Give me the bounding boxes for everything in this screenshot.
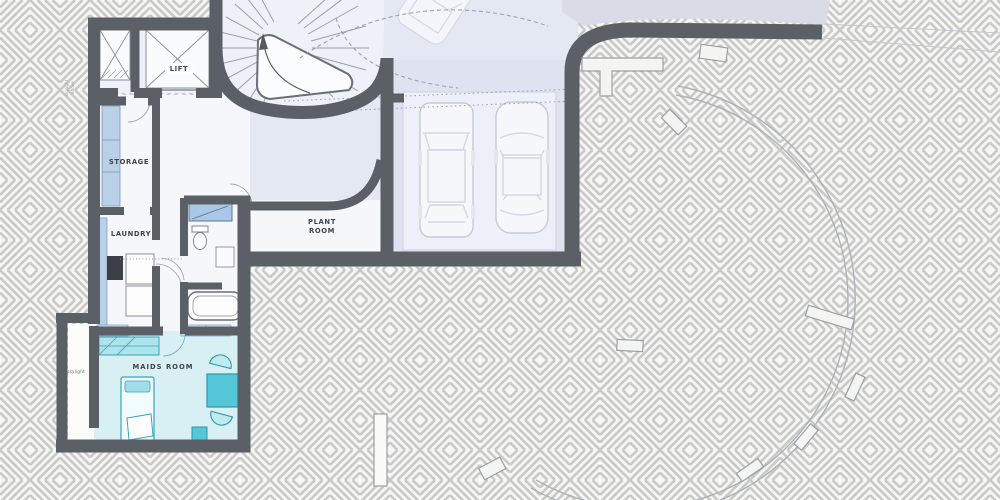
laundry-cabinet-2 [126,286,154,316]
plant-room-label-1: PLANT [308,218,336,226]
laundry-cabinet-1 [126,254,154,284]
storage-label: STORAGE [109,158,149,166]
toilet-bowl [194,233,207,250]
pier-3 [617,339,644,351]
skylight-label: skylight [67,369,85,374]
bed-blanket [127,414,153,440]
side-note-line-1: skylight [64,79,69,96]
lift-label: LIFT [170,65,189,73]
toilet-cistern [192,226,208,232]
floor-plan-page: LIFT STORAGE LAUNDRY PLANT ROOM [0,0,1000,500]
storage-shelves [102,106,120,206]
car-suv [418,103,475,237]
site-fin-wall [374,414,387,486]
car-sedan [494,102,550,233]
plant-room-label-2: ROOM [309,227,335,235]
pier-1 [699,44,728,62]
floor-plan-canvas: LIFT STORAGE LAUNDRY PLANT ROOM [0,0,1000,500]
side-note: skylight above [64,79,75,96]
maids-room-label: MAIDS ROOM [132,363,193,371]
laundry-shelf-strip [99,218,107,330]
bath-closet [216,247,234,267]
side-note-line-2: above [70,81,75,94]
table [207,374,238,407]
laundry-label: LAUNDRY [111,230,151,238]
bed-pillow [125,381,150,392]
washing-machine [107,256,123,280]
